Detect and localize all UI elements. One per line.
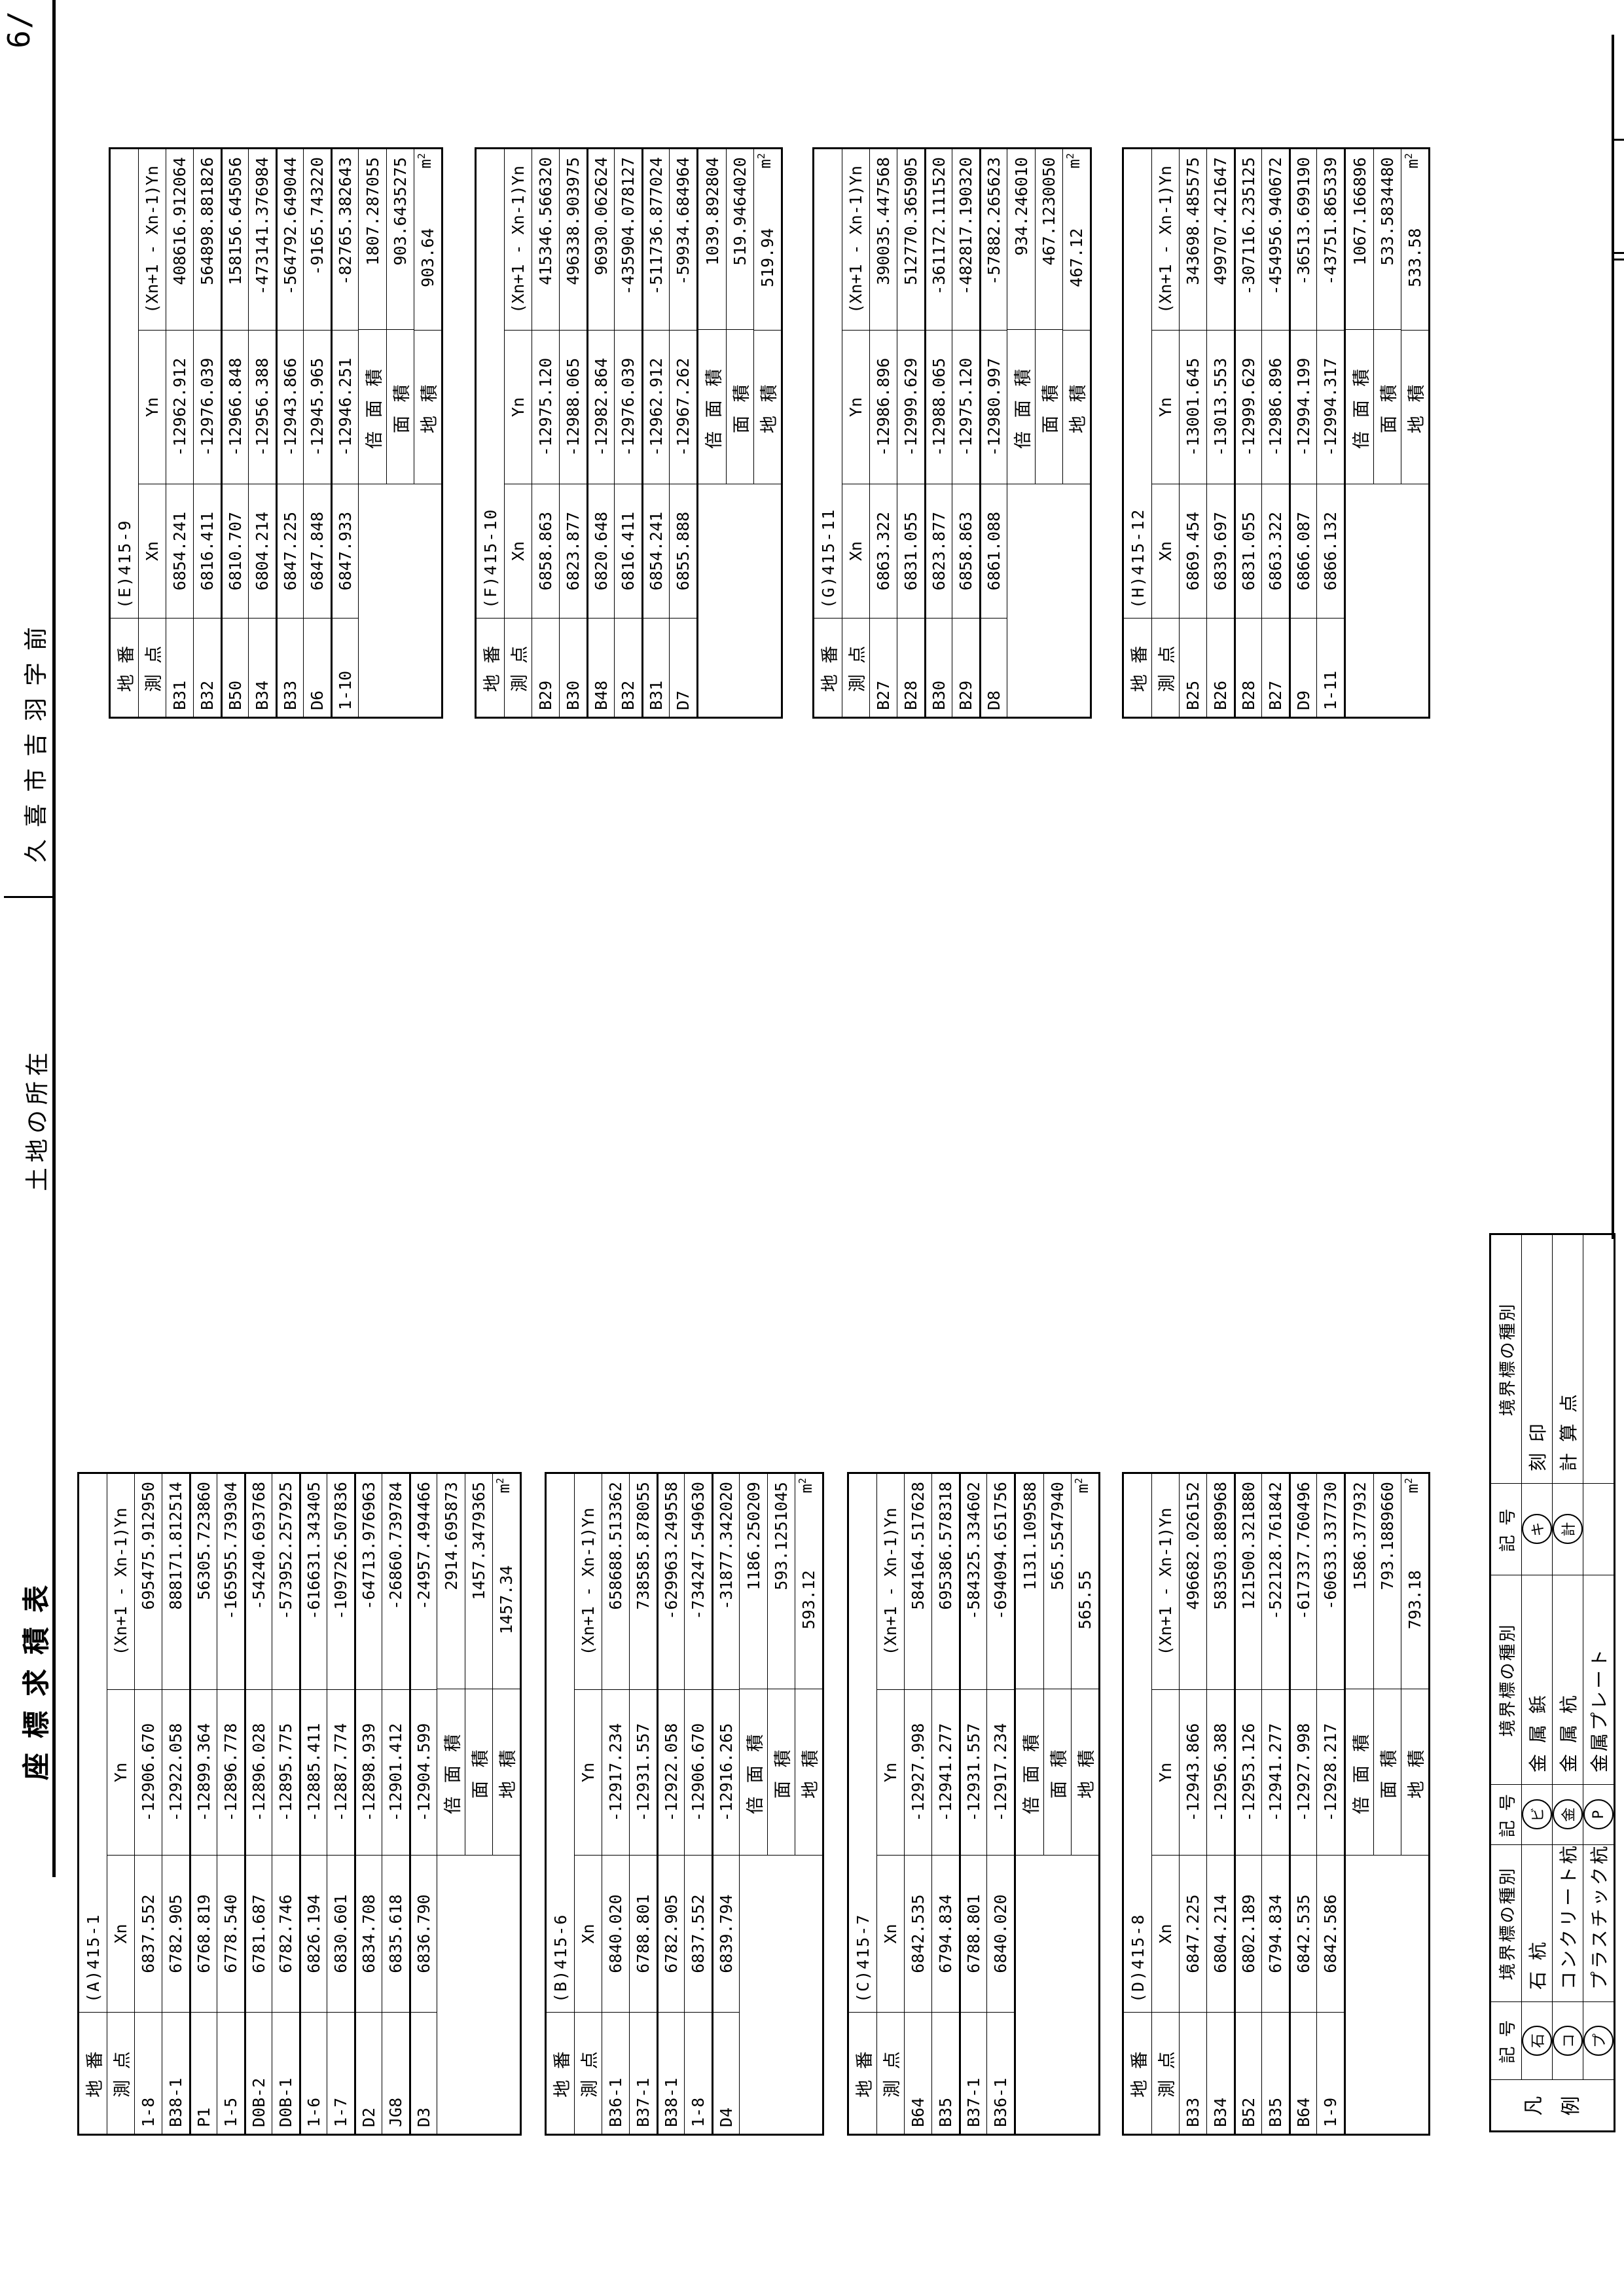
area-row: 面 積793.1889660 <box>1373 1474 1401 1855</box>
point-row: 1-76830.601-12887.774-109726.507836 <box>327 1474 354 2134</box>
point-x: 6866.087 <box>1291 484 1316 619</box>
area-label: 面 積 <box>727 330 753 484</box>
x-header-label: Xn <box>842 484 869 619</box>
location-separator-line <box>4 896 52 898</box>
y-header-label: Yn <box>505 331 532 484</box>
x-header-label: Xn <box>107 1856 134 2013</box>
point-row: B336847.225-12943.866496682.026152 <box>1179 1474 1206 2134</box>
point-row: B336847.225-12943.866-564792.649044 <box>276 149 303 717</box>
parcel-area-row: 地 積565.55m2 <box>1071 1474 1098 1855</box>
scanned-page: 6/ 座標求積表 土地の所在 久喜市吉羽字前 地 番(A)415-1測 点XnY… <box>0 0 1624 2296</box>
station-header-label: 測 点 <box>1152 2013 1179 2134</box>
point-product: -473141.376984 <box>249 149 276 331</box>
parcel-number: (G)415-11 <box>814 149 842 619</box>
point-x: 6855.888 <box>670 484 696 619</box>
bottom-rule <box>1612 35 1614 1239</box>
double-area-value: 1586.377932 <box>1346 1474 1373 1689</box>
point-row: JG86835.618-12901.412-26860.739784 <box>382 1474 409 2134</box>
area-label: 面 積 <box>1036 330 1062 484</box>
marker-type-name: コンクリート杭 <box>1553 1845 1583 2002</box>
parcel-area-label: 地 積 <box>795 1689 822 1855</box>
point-product: -24957.494466 <box>411 1474 437 1690</box>
double-area-row: 倍 面 積1039.892804 <box>698 149 726 484</box>
parcel-number: (C)415-7 <box>849 1474 876 2013</box>
circled-marker-symbol-icon: 計 <box>1553 1515 1583 1545</box>
point-x: 6823.877 <box>560 484 586 619</box>
y-header-label: Yn <box>575 1690 602 1856</box>
point-x: 6869.454 <box>1180 484 1206 619</box>
point-row: P16768.819-12899.36456305.723860 <box>189 1474 217 2134</box>
marker-type-name: 金属プレート <box>1583 1575 1614 1785</box>
point-y: -12956.388 <box>249 331 276 484</box>
marker-symbol-cell: 計 <box>1553 1484 1583 1575</box>
point-y: -12982.864 <box>588 331 614 484</box>
parcel-header-label: 地 番 <box>111 619 138 717</box>
point-x: 6836.790 <box>411 1856 437 2013</box>
double-area-number: 1039.892804 <box>703 157 722 266</box>
area-row: 面 積1457.3479365 <box>465 1474 492 1855</box>
point-name: B26 <box>1207 619 1234 717</box>
legend-title-text: 凡例 <box>1515 2094 1590 2117</box>
point-y: -12941.277 <box>1262 1690 1289 1856</box>
summary-columns: 倍 面 積934.246010面 積467.1230050地 積467.12m2 <box>1007 149 1090 484</box>
point-name: B34 <box>1207 2013 1234 2134</box>
point-row: B506810.707-12966.848158156.645056 <box>221 149 248 717</box>
square-meter-unit: m2 <box>416 153 435 168</box>
point-product: -57882.265623 <box>981 149 1007 331</box>
point-row: 1-106847.933-12946.251-82765.382643 <box>331 149 358 717</box>
point-name: D6 <box>304 619 331 717</box>
point-product: -36513.699190 <box>1291 149 1316 331</box>
point-name: B52 <box>1236 2013 1261 2134</box>
point-name: D7 <box>670 619 696 717</box>
parcel-area-label: 地 積 <box>1063 331 1090 484</box>
unit-exponent: 2 <box>1073 1478 1085 1484</box>
product-header-label: (Xn+1 - Xn-1)Yn <box>505 149 532 331</box>
area-number: 593.1251045 <box>772 1482 791 1590</box>
point-product: 658688.513362 <box>602 1474 629 1690</box>
summary-block: 倍 面 積2914.695873面 積1457.3479365地 積1457.3… <box>437 1474 520 2134</box>
point-product: 343698.485575 <box>1180 149 1206 331</box>
point-name: B27 <box>1262 619 1289 717</box>
parcel-area-number: 903.64 <box>418 228 437 287</box>
y-header-label: Yn <box>1152 1690 1179 1856</box>
point-x: 6830.601 <box>327 1856 354 2013</box>
point-name: 1-11 <box>1317 619 1344 717</box>
parcel-row: 地 番(F)415-10 <box>477 149 504 717</box>
point-product: -43751.865339 <box>1317 149 1344 331</box>
point-y: -12898.939 <box>356 1690 382 1856</box>
survey-table-h: 地 番(H)415-12測 点XnYn(Xn+1 - Xn-1)YnB25686… <box>1122 147 1430 719</box>
product-header-label: (Xn+1 - Xn-1)Yn <box>842 149 869 331</box>
point-y: -12928.217 <box>1317 1690 1344 1856</box>
point-y: -12899.364 <box>191 1690 217 1856</box>
area-number: 903.6435275 <box>391 157 410 266</box>
parcel-area-row: 地 積519.94m2 <box>753 149 781 484</box>
point-name: B29 <box>952 619 979 717</box>
circled-marker-symbol-icon: コ <box>1553 2026 1583 2056</box>
double-area-value: 2914.695873 <box>437 1474 465 1689</box>
point-product: 499707.421647 <box>1207 149 1234 331</box>
point-row: B296858.863-12975.120415346.566320 <box>532 149 559 717</box>
parcel-area-row: 地 積593.12m2 <box>795 1474 822 1855</box>
point-name: D8 <box>981 619 1007 717</box>
unit-exponent: 2 <box>1403 1478 1415 1484</box>
survey-table-b: 地 番(B)415-6測 点XnYn(Xn+1 - Xn-1)YnB36-168… <box>545 1472 824 2136</box>
point-product: -629963.249558 <box>659 1474 684 1690</box>
point-y: -12956.388 <box>1207 1690 1234 1856</box>
summary-columns: 倍 面 積1186.250209面 積593.1251045地 積593.12m… <box>740 1474 822 1856</box>
parcel-area-value: 533.58m2 <box>1401 149 1428 331</box>
page-title: 座標求積表 <box>14 1571 54 1780</box>
point-row: D0B-26781.687-12896.028-54240.693768 <box>244 1474 272 2134</box>
product-header-label: (Xn+1 - Xn-1)Yn <box>107 1474 134 1690</box>
summary-block: 倍 面 積1186.250209面 積593.1251045地 積593.12m… <box>739 1474 822 2134</box>
double-area-number: 1186.250209 <box>744 1482 763 1590</box>
product-header-label: (Xn+1 - Xn-1)Yn <box>575 1474 602 1690</box>
point-y: -12976.039 <box>194 331 221 484</box>
double-area-value: 1186.250209 <box>740 1474 767 1689</box>
point-row: B286831.055-12999.629-307116.235125 <box>1234 149 1261 717</box>
point-name: D0B-1 <box>272 2013 299 2134</box>
y-header-label: Yn <box>1152 331 1179 484</box>
double-area-label: 倍 面 積 <box>698 330 726 484</box>
point-product: 738585.878055 <box>630 1474 657 1690</box>
column-header-row: 測 点XnYn(Xn+1 - Xn-1)Yn <box>1151 149 1179 717</box>
legend-entry-row: 石石 杭ビ金 属 鋲キ刻 印 <box>1521 1235 1552 2079</box>
double-area-number: 934.246010 <box>1012 157 1031 256</box>
parcel-area-value: 1457.34m2 <box>493 1474 520 1689</box>
point-row: B346804.214-12956.388-473141.376984 <box>248 149 276 717</box>
marker-type-header: 境界標の種別 <box>1491 1235 1521 1484</box>
summary-columns: 倍 面 積2914.695873面 積1457.3479365地 積1457.3… <box>437 1474 520 1856</box>
point-row: B36-16840.020-12917.234658688.513362 <box>602 1474 629 2134</box>
point-y: -12931.557 <box>961 1690 986 1856</box>
survey-table-a: 地 番(A)415-1測 点XnYn(Xn+1 - Xn-1)Yn1-86837… <box>77 1472 522 2136</box>
point-y: -12885.411 <box>301 1690 327 1856</box>
marker-symbol-cell: ビ <box>1522 1785 1552 1845</box>
double-area-row: 倍 面 積2914.695873 <box>437 1474 465 1855</box>
summary-block: 倍 面 積1807.287055面 積903.6435275地 積903.64m… <box>358 149 441 717</box>
double-area-number: 1131.109588 <box>1020 1482 1039 1590</box>
y-header-label: Yn <box>107 1690 134 1856</box>
area-value: 793.1889660 <box>1374 1474 1401 1689</box>
x-header-label: Xn <box>505 484 532 619</box>
parcel-area-value: 903.64m2 <box>414 149 441 331</box>
parcel-row: 地 番(D)415-8 <box>1124 1474 1151 2134</box>
x-header-label: Xn <box>575 1856 602 2013</box>
point-y: -12994.317 <box>1317 331 1344 484</box>
parcel-area-row: 地 積533.58m2 <box>1401 149 1428 484</box>
parcel-area-value: 593.12m2 <box>795 1474 822 1689</box>
point-y: -12906.670 <box>685 1690 712 1856</box>
parcel-area-label: 地 積 <box>1072 1689 1098 1855</box>
point-name: B38-1 <box>162 2013 189 2134</box>
point-row: B316854.241-12962.912408616.912064 <box>166 149 193 717</box>
point-row: 1-66826.194-12885.411-616631.343405 <box>299 1474 327 2134</box>
parcel-header-label: 地 番 <box>814 619 842 717</box>
point-row: B646842.535-12927.998-617337.760496 <box>1289 1474 1316 2134</box>
point-name: D4 <box>713 2013 739 2134</box>
double-area-value: 1039.892804 <box>698 149 726 330</box>
parcel-row: 地 番(H)415-12 <box>1124 149 1151 717</box>
parcel-number: (B)415-6 <box>547 1474 574 2013</box>
point-y: -12975.120 <box>952 331 979 484</box>
parcel-number: (F)415-10 <box>477 149 504 619</box>
station-header-label: 測 点 <box>877 2013 904 2134</box>
marker-symbol-cell: プ <box>1583 2002 1614 2079</box>
parcel-area-value: 467.12m2 <box>1063 149 1090 331</box>
point-x: 6781.687 <box>246 1856 272 2013</box>
point-product: 496682.026152 <box>1180 1474 1206 1690</box>
area-value: 565.5547940 <box>1044 1474 1071 1689</box>
double-area-number: 1807.287055 <box>363 157 382 266</box>
point-x: 6834.708 <box>356 1856 382 2013</box>
summary-empty-cell <box>1346 484 1428 717</box>
square-meter-unit: m2 <box>1403 153 1422 168</box>
double-area-label: 倍 面 積 <box>1016 1689 1043 1855</box>
point-name: 1-5 <box>217 2013 244 2134</box>
double-area-row: 倍 面 積1586.377932 <box>1346 1474 1373 1855</box>
area-number: 565.5547940 <box>1048 1482 1067 1590</box>
point-y: -12931.557 <box>630 1690 657 1856</box>
double-area-row: 倍 面 積1067.166896 <box>1346 149 1373 484</box>
point-row: D96866.087-12994.199-36513.699190 <box>1289 149 1316 717</box>
point-row: B38-16782.905-12922.058888171.812514 <box>162 1474 189 2134</box>
point-row: D26834.708-12898.939-64713.976963 <box>354 1474 382 2134</box>
summary-empty-cell <box>437 1856 520 2134</box>
point-x: 6810.707 <box>223 484 248 619</box>
double-area-value: 1067.166896 <box>1346 149 1373 330</box>
point-x: 6847.225 <box>1180 1856 1206 2013</box>
unit-exponent: 2 <box>494 1478 506 1484</box>
summary-columns: 倍 面 積1039.892804面 積519.9464020地 積519.94m… <box>698 149 781 484</box>
point-x: 6823.877 <box>926 484 952 619</box>
parcel-area-label: 地 積 <box>1401 1689 1428 1855</box>
x-header-label: Xn <box>1152 484 1179 619</box>
point-y: -12976.039 <box>615 331 641 484</box>
summary-block: 倍 面 積1131.109588面 積565.5547940地 積565.55m… <box>1014 1474 1098 2134</box>
summary-columns: 倍 面 積1807.287055面 積903.6435275地 積903.64m… <box>359 149 441 484</box>
point-y: -12945.965 <box>304 331 331 484</box>
point-y: -12988.065 <box>926 331 952 484</box>
circled-marker-symbol-icon: P <box>1583 1800 1614 1830</box>
point-row: D76855.888-12967.262-59934.684964 <box>669 149 696 717</box>
unit-exponent: 2 <box>1064 153 1076 159</box>
point-row: B326816.411-12976.039564898.881826 <box>193 149 221 717</box>
point-name: B36-1 <box>987 2013 1014 2134</box>
point-y: -13001.645 <box>1180 331 1206 484</box>
product-header-label: (Xn+1 - Xn-1)Yn <box>1152 149 1179 331</box>
unit-exponent: 2 <box>416 153 427 159</box>
parcel-header-label: 地 番 <box>1124 2013 1151 2134</box>
double-area-number: 2914.695873 <box>442 1482 461 1590</box>
point-y: -12927.998 <box>1291 1690 1316 1856</box>
double-area-row: 倍 面 積1131.109588 <box>1016 1474 1043 1855</box>
summary-block: 倍 面 積1586.377932面 積793.1889660地 積793.18m… <box>1344 1474 1428 2134</box>
point-name: B35 <box>932 2013 959 2134</box>
station-header-label: 測 点 <box>505 619 532 717</box>
point-product: -454956.940672 <box>1262 149 1289 331</box>
point-y: -12975.120 <box>532 331 559 484</box>
point-y: -12927.998 <box>905 1690 931 1856</box>
point-product: 695386.578318 <box>932 1474 959 1690</box>
point-product: 564898.881826 <box>194 149 221 331</box>
circled-marker-symbol-icon: ビ <box>1522 1800 1552 1830</box>
point-product: 56305.723860 <box>191 1474 217 1690</box>
point-x: 6854.241 <box>166 484 193 619</box>
point-name: B32 <box>615 619 641 717</box>
point-row: B37-16788.801-12931.557738585.878055 <box>629 1474 657 2134</box>
point-row: 1-86837.552-12906.670-734247.549630 <box>684 1474 712 2134</box>
point-name: B31 <box>166 619 193 717</box>
point-x: 6842.586 <box>1317 1856 1344 2013</box>
parcel-area-label: 地 積 <box>414 331 441 484</box>
area-value: 593.1251045 <box>768 1474 795 1689</box>
point-product: -54240.693768 <box>246 1474 272 1690</box>
summary-columns: 倍 面 積1131.109588面 積565.5547940地 積565.55m… <box>1016 1474 1098 1856</box>
point-x: 6840.020 <box>602 1856 629 2013</box>
area-row: 面 積903.6435275 <box>386 149 414 484</box>
point-name: B33 <box>278 619 303 717</box>
point-row: B356794.834-12941.277695386.578318 <box>931 1474 959 2134</box>
area-row: 面 積593.1251045 <box>767 1474 795 1855</box>
page-number: 6/ <box>1 10 37 48</box>
point-x: 6837.552 <box>135 1856 162 2013</box>
station-header-label: 測 点 <box>1152 619 1179 717</box>
parcel-row: 地 番(A)415-1 <box>79 1474 107 2134</box>
parcel-area-row: 地 積1457.34m2 <box>492 1474 520 1855</box>
point-y: -12904.599 <box>411 1690 437 1856</box>
point-x: 6840.020 <box>987 1856 1014 2013</box>
double-area-number: 1067.166896 <box>1350 157 1369 266</box>
point-x: 6826.194 <box>301 1856 327 2013</box>
point-row: D0B-16782.746-12895.775-573952.257925 <box>272 1474 299 2134</box>
parcel-number: (D)415-8 <box>1124 1474 1151 2013</box>
point-y: -12953.126 <box>1236 1690 1261 1856</box>
point-y: -12999.629 <box>1236 331 1261 484</box>
point-product: -26860.739784 <box>382 1474 409 1690</box>
square-meter-unit: m2 <box>1403 1478 1422 1493</box>
station-header-label: 測 点 <box>575 2013 602 2134</box>
point-x: 6782.905 <box>659 1856 684 2013</box>
point-product: 96930.062624 <box>588 149 614 331</box>
point-x: 6782.746 <box>272 1856 299 2013</box>
symbol-header: 記 号 <box>1491 1484 1521 1575</box>
legend-body: 記 号境界標の種別記 号境界標の種別記 号境界標の種別石石 杭ビ金 属 鋲キ刻 … <box>1491 1235 1614 2080</box>
marker-type-name: 石 杭 <box>1522 1845 1552 2002</box>
point-x: 6768.819 <box>191 1856 217 2013</box>
point-product: 408616.912064 <box>166 149 193 331</box>
square-meter-unit: m2 <box>494 1478 513 1493</box>
square-meter-unit: m2 <box>1073 1478 1092 1493</box>
point-name: 1-8 <box>135 2013 162 2134</box>
point-product: -82765.382643 <box>333 149 358 331</box>
point-name: B37-1 <box>961 2013 986 2134</box>
point-product: -511736.877024 <box>643 149 669 331</box>
summary-empty-cell <box>698 484 781 717</box>
point-row: B306823.877-12988.065-361172.111520 <box>924 149 952 717</box>
marker-type-name: プラスチック杭 <box>1583 1845 1614 2002</box>
point-y: -12962.912 <box>166 331 193 484</box>
area-row: 面 積565.5547940 <box>1043 1474 1071 1855</box>
point-y: -12906.670 <box>135 1690 162 1856</box>
parcel-row: 地 番(C)415-7 <box>849 1474 876 2134</box>
double-area-number: 1586.377932 <box>1350 1482 1369 1590</box>
point-name: B30 <box>926 619 952 717</box>
point-name: B32 <box>194 619 221 717</box>
column-header-row: 測 点XnYn(Xn+1 - Xn-1)Yn <box>876 1474 904 2134</box>
marker-symbol-cell: コ <box>1553 2002 1583 2079</box>
marker-symbol-cell: 石 <box>1522 2002 1552 2079</box>
point-x: 6820.648 <box>588 484 614 619</box>
point-name: 1-6 <box>301 2013 327 2134</box>
point-x: 6847.933 <box>333 484 358 619</box>
survey-table-e: 地 番(E)415-9測 点XnYn(Xn+1 - Xn-1)YnB316854… <box>109 147 443 719</box>
summary-empty-cell <box>359 484 441 717</box>
point-product: -109726.507836 <box>327 1474 354 1690</box>
x-header-label: Xn <box>139 484 166 619</box>
point-x: 6816.411 <box>615 484 641 619</box>
point-name: B28 <box>1236 619 1261 717</box>
point-x: 6842.535 <box>905 1856 931 2013</box>
point-y: -12941.277 <box>932 1690 959 1856</box>
point-y: -12986.896 <box>1262 331 1289 484</box>
point-y: -13013.553 <box>1207 331 1234 484</box>
column-header-row: 測 点XnYn(Xn+1 - Xn-1)Yn <box>107 1474 134 2134</box>
point-x: 6842.535 <box>1291 1856 1316 2013</box>
point-x: 6839.697 <box>1207 484 1234 619</box>
marker-type-name: 刻 印 <box>1522 1235 1552 1484</box>
circled-marker-symbol-icon: 石 <box>1522 2026 1552 2056</box>
station-header-label: 測 点 <box>842 619 869 717</box>
point-y: -12966.848 <box>223 331 248 484</box>
point-product: 496338.903975 <box>560 149 586 331</box>
area-label: 面 積 <box>1374 1689 1401 1855</box>
point-x: 6831.055 <box>1236 484 1261 619</box>
point-y: -12896.778 <box>217 1690 244 1856</box>
location-value: 久喜市吉羽字前 <box>17 615 51 863</box>
marker-symbol-cell: キ <box>1522 1484 1552 1575</box>
point-product: -616631.343405 <box>301 1474 327 1690</box>
point-row: B286831.055-12999.629512770.365905 <box>897 149 924 717</box>
point-product: 390035.447568 <box>870 149 897 331</box>
point-x: 6788.801 <box>630 1856 657 2013</box>
bottom-tick-mark <box>1612 259 1624 260</box>
point-y: -12988.065 <box>560 331 586 484</box>
marker-type-name <box>1583 1235 1614 1484</box>
summary-empty-cell <box>1007 484 1090 717</box>
point-row: 1-86837.552-12906.670695475.912950 <box>134 1474 162 2134</box>
x-header-label: Xn <box>1152 1856 1179 2013</box>
area-number: 467.1230050 <box>1039 157 1058 266</box>
point-product: 512770.365905 <box>897 149 924 331</box>
area-label: 面 積 <box>387 330 414 484</box>
point-row: B37-16788.801-12931.557-584325.334602 <box>959 1474 986 2134</box>
column-header-row: 測 点XnYn(Xn+1 - Xn-1)Yn <box>842 149 869 717</box>
square-meter-unit: m2 <box>797 1478 816 1493</box>
point-y: -12895.775 <box>272 1690 299 1856</box>
parcel-area-label: 地 積 <box>493 1689 520 1855</box>
point-product: 121500.321880 <box>1236 1474 1261 1690</box>
parcel-area-number: 519.94 <box>758 228 777 287</box>
point-x: 6804.214 <box>1207 1856 1234 2013</box>
point-x: 6788.801 <box>961 1856 986 2013</box>
parcel-area-label: 地 積 <box>1401 331 1428 484</box>
point-x: 6778.540 <box>217 1856 244 2013</box>
point-name: B31 <box>643 619 669 717</box>
point-name: D3 <box>411 2013 437 2134</box>
